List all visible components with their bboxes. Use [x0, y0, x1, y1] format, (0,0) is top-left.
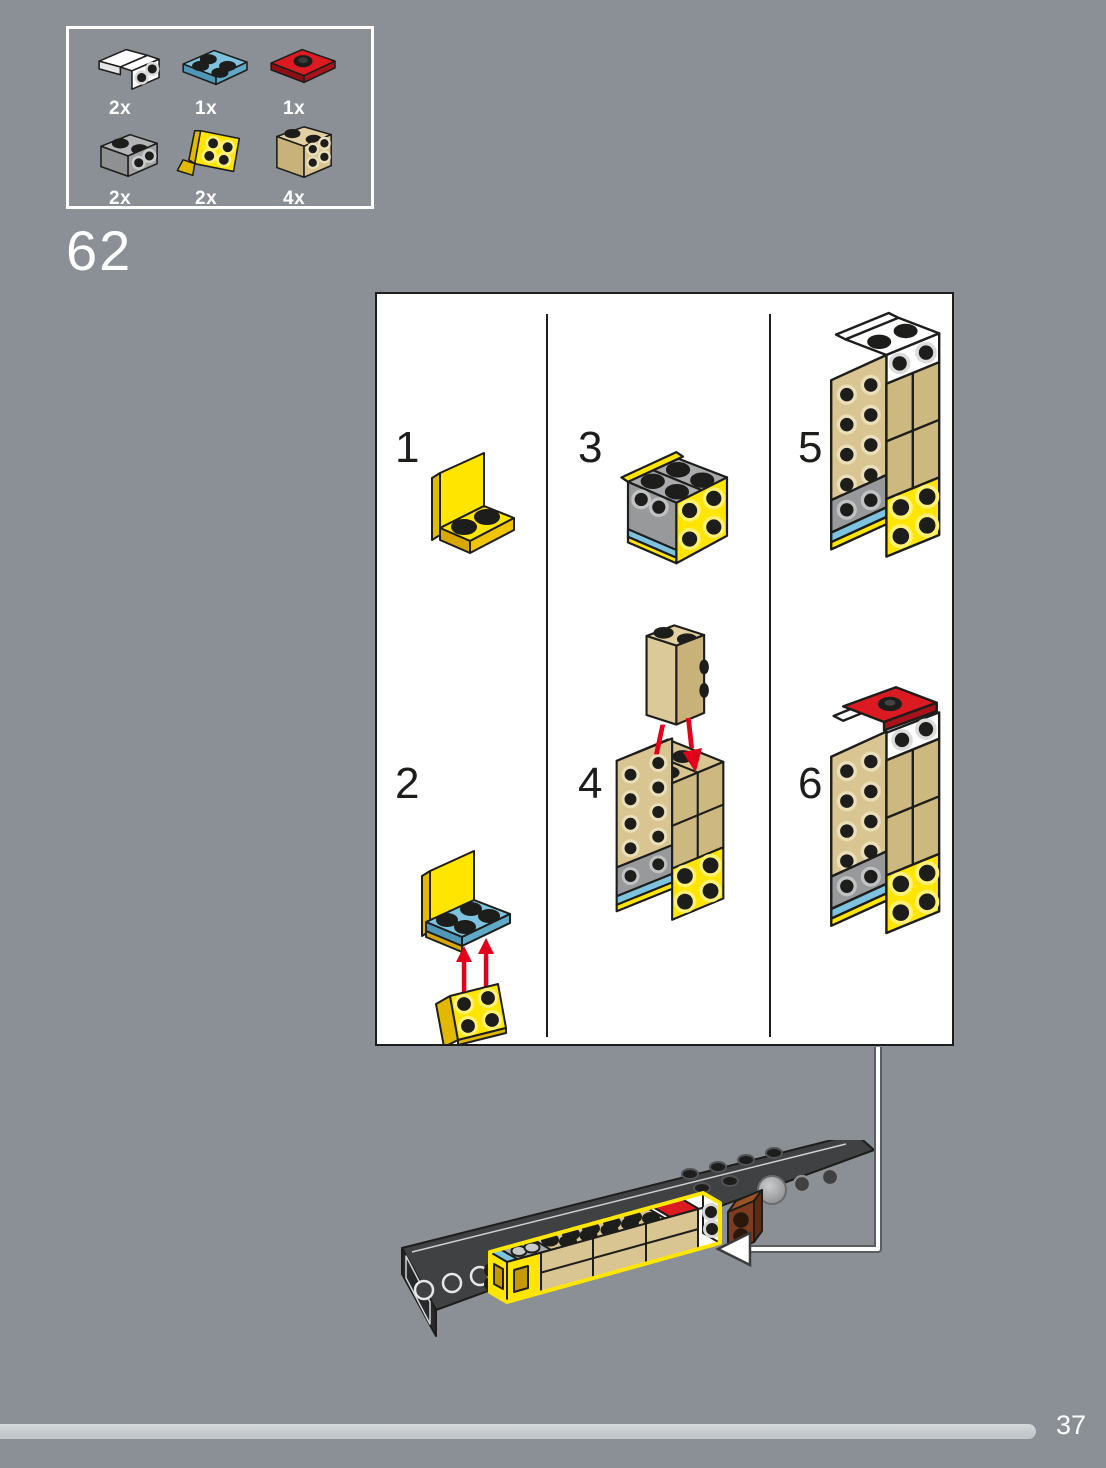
part-qty: 2x — [173, 188, 265, 210]
part-qty: 1x — [173, 98, 265, 120]
instruction-page: { "page": { "step_number": "62", "backgr… — [0, 0, 1106, 1468]
substep-4-illustration — [606, 622, 766, 921]
substep-3-illustration — [606, 442, 749, 591]
substep-1-illustration — [418, 442, 518, 557]
gray-brick-icon — [87, 125, 175, 185]
substep-5-illustration — [812, 308, 980, 558]
column-divider — [546, 314, 548, 1037]
part-item: 1x — [261, 37, 353, 120]
substep-label-1: 1 — [395, 426, 419, 470]
column-divider — [769, 314, 771, 1037]
substep-2-illustration — [414, 832, 539, 1044]
instruction-panel: 1 2 3 4 5 6 — [375, 292, 954, 1046]
parts-callout-box: 2x 1x 1x — [66, 26, 374, 209]
part-item: 1x — [173, 37, 265, 120]
substep-label-2: 2 — [395, 762, 419, 806]
azure-plate-icon — [173, 37, 261, 95]
part-qty: 2x — [87, 98, 179, 120]
substep-label-3: 3 — [578, 426, 602, 470]
part-item: 4x — [261, 121, 353, 210]
page-number: 37 — [1048, 1410, 1094, 1441]
yellow-bracket-icon — [173, 123, 261, 185]
part-item: 2x — [87, 37, 179, 120]
substep-6-illustration — [812, 680, 980, 939]
part-qty: 2x — [87, 188, 179, 210]
part-item: 2x — [87, 125, 179, 210]
substep-label-4: 4 — [578, 762, 602, 806]
step-number: 62 — [66, 218, 132, 283]
placement-illustration — [390, 1140, 890, 1370]
red-plate-icon — [261, 37, 349, 95]
white-bracket-icon — [87, 37, 175, 95]
part-qty: 1x — [261, 98, 353, 120]
part-qty: 4x — [261, 188, 353, 210]
progress-bar — [0, 1424, 1036, 1439]
tan-brick-icon — [261, 121, 349, 185]
part-item: 2x — [173, 123, 265, 210]
